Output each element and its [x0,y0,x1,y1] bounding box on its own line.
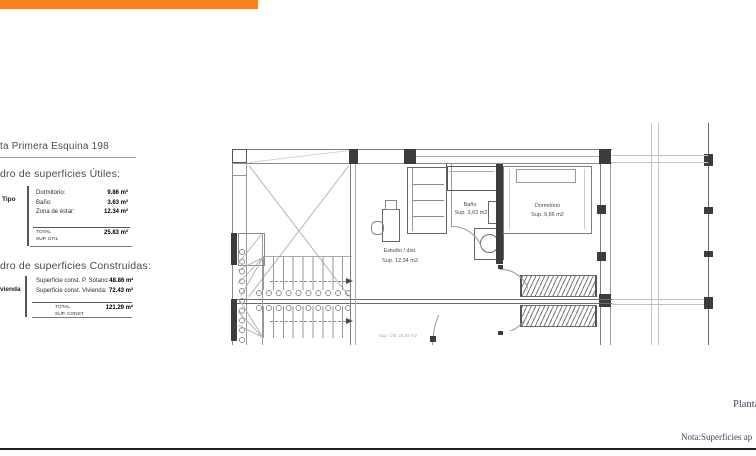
useful-side-label: Tipo [2,196,16,203]
desk-monitor [385,200,397,210]
orange-header-bar [0,0,258,9]
table-row: Superficie const. Vivienda: 72.43 m² [36,288,133,294]
row-value: 3.63 m² [107,200,128,206]
built-table-border [25,276,27,317]
neighbor-wall-extension [612,155,708,156]
useful-total-separator [33,227,130,228]
wall-right-inner [610,164,611,345]
party-wall-extension [612,299,708,300]
desk-chair [371,221,384,235]
row-label: Baño: [36,200,52,206]
row-label: Dormitorio: [36,190,65,196]
useful-table-bottom [30,246,132,247]
title-underline [0,157,136,158]
wall-pier [599,149,611,164]
stair-direction-arrow [346,318,353,324]
neighbor-mullion [704,297,713,309]
window-mullion [599,294,611,307]
wardrobe-shelf [413,200,444,201]
wardrobe-shelf [413,184,444,185]
room-sup-estudio: Sup. 12,34 m2 [370,257,430,266]
stair-direction-line [270,281,346,282]
bed-inner-line [584,169,585,229]
row-label: Superficie const. Vivienda: [36,288,107,294]
useful-table-rows: Dormitorio: 9.86 m² Baño: 3.63 m² Zona d… [36,190,128,219]
plan-sheet: { "header": { "bar_color": "#F5821F" }, … [0,0,756,456]
stair-direction-line [270,321,346,322]
total-label: TOTAL SUP. ÚTIL [36,230,58,244]
stair-baluster-row [254,289,354,297]
door-swing-large [432,315,512,345]
bath-door-swing [451,226,482,257]
built-side-label: vienda [0,286,21,293]
stair-treads-upper [263,256,352,290]
wall-left-pier [231,299,237,341]
useful-surfaces-heading: dro de superficies Útiles: [0,168,120,180]
party-wall-line [237,299,612,300]
row-value: 72.43 m² [109,288,133,294]
footer-rule [0,448,756,450]
total-value: 25.83 m² [104,230,128,244]
wall-corner-block [232,163,247,176]
wardrobe-shelf [413,216,444,217]
useful-table-border [27,186,29,246]
row-value: 12.34 m² [104,209,128,215]
door-leaf [498,265,503,269]
useful-total-row: TOTAL SUP. ÚTIL 25.83 m² [36,230,128,244]
built-surfaces-heading: dro de superficies Construidas: [0,260,151,272]
table-row: Baño: 3.63 m² [36,200,128,206]
row-value: 48.86 m² [109,278,133,284]
row-label: Superficie const. P. Sótano: [36,278,109,284]
desk [382,209,400,242]
window-mullion [597,205,606,214]
wall-pier [349,149,358,164]
door-swing-upper [500,269,528,297]
sheet-title: ta Primera Esquina 198 [0,141,109,152]
room-sup-bano: Sup. 3,63 m2 [447,209,495,218]
room-label-dormitorio: Dormitorio [505,202,590,211]
built-total-separator [32,302,132,303]
wall-top-inner [247,163,612,164]
window-band-line [416,156,599,157]
built-table-bottom [32,317,132,318]
row-label: Zona de estar: [36,209,75,215]
party-wall-extension [612,304,708,305]
wall-corner-block [232,149,247,163]
table-row: Superficie const. P. Sótano: 48.86 m² [36,278,133,284]
bed-inner-line [509,169,510,229]
wall-top-outer [232,149,612,150]
wall-pier [404,149,416,164]
faint-annotation: Sup. Útil: 25,83 m2 [374,332,422,339]
radiator [520,305,597,327]
table-row: Zona de estar: 12.34 m² [36,209,128,215]
room-label-estudio: Estudio / dist. [370,247,430,256]
stair-direction-arrow [346,278,353,284]
shower [447,166,498,191]
built-table-rows: Superficie const. P. Sótano: 48.86 m² Su… [36,278,133,297]
neighbor-wall-line [658,123,659,345]
neighbor-wall-extension [612,162,708,163]
window-mullion [597,252,606,261]
neighbor-mullion [704,207,713,214]
bath-bedroom-wall [496,164,503,264]
wall-left-pier [231,233,237,265]
footer-note: Nota:Superficies ap [681,432,752,442]
shower-inner-line [449,171,494,172]
radiator [520,275,597,297]
neighbor-mullion [704,251,713,257]
stair-baluster-row [254,304,354,312]
neighbor-wall-line [651,123,652,345]
table-row: Dormitorio: 9.86 m² [36,190,128,196]
footer-plan-label: Planta [733,399,756,410]
room-sup-dormitorio: Sup. 9,86 m2 [505,211,590,220]
bed-pillow [516,169,576,183]
door-leaf [430,336,436,342]
top-band-glazing-line [249,150,349,163]
row-value: 9.86 m² [107,190,128,196]
void-right-wall-inner [355,164,356,345]
